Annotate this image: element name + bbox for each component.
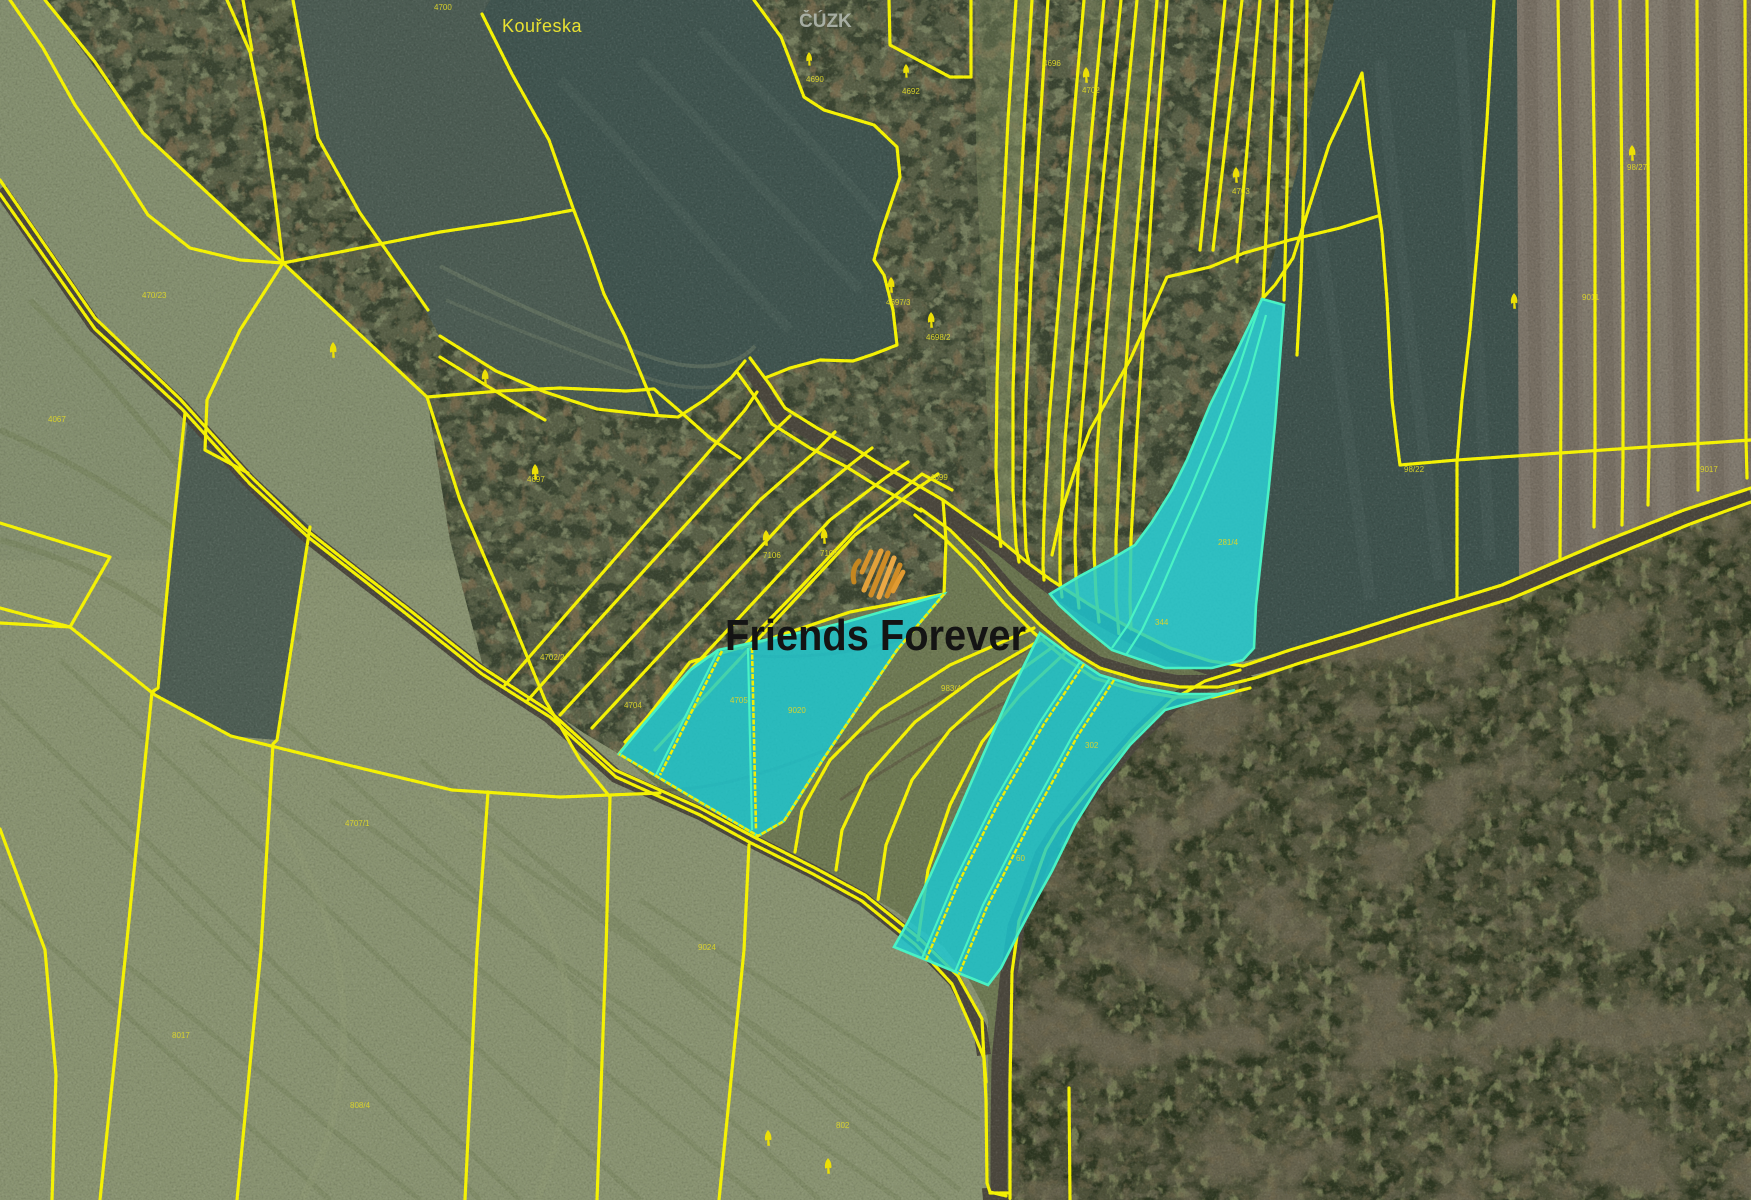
svg-text:302: 302 bbox=[1085, 741, 1099, 750]
svg-text:4707/1: 4707/1 bbox=[345, 819, 370, 828]
svg-text:98/22: 98/22 bbox=[1404, 465, 1425, 474]
svg-text:808/4: 808/4 bbox=[350, 1101, 371, 1110]
svg-text:4696: 4696 bbox=[1043, 59, 1061, 68]
svg-text:4702: 4702 bbox=[1082, 86, 1100, 95]
svg-text:ČÚZK: ČÚZK bbox=[799, 10, 852, 32]
svg-text:344: 344 bbox=[1155, 618, 1169, 627]
svg-text:4702/2: 4702/2 bbox=[540, 653, 565, 662]
svg-text:7106: 7106 bbox=[763, 551, 781, 560]
svg-text:4067: 4067 bbox=[48, 415, 66, 424]
svg-text:9011: 9011 bbox=[1582, 293, 1600, 302]
svg-text:8017: 8017 bbox=[172, 1031, 190, 1040]
svg-text:9020: 9020 bbox=[788, 706, 806, 715]
svg-text:4690: 4690 bbox=[806, 75, 824, 84]
svg-text:4704: 4704 bbox=[624, 701, 642, 710]
svg-text:Friends Forever: Friends Forever bbox=[725, 611, 1026, 660]
svg-text:4699: 4699 bbox=[930, 473, 948, 482]
svg-text:4697/3: 4697/3 bbox=[886, 298, 911, 307]
svg-text:4700: 4700 bbox=[434, 3, 452, 12]
svg-text:4705: 4705 bbox=[730, 696, 748, 705]
svg-text:470/23: 470/23 bbox=[142, 291, 167, 300]
svg-text:9017: 9017 bbox=[1700, 465, 1718, 474]
svg-text:9024: 9024 bbox=[698, 943, 716, 952]
svg-text:4698/2: 4698/2 bbox=[926, 333, 951, 342]
svg-text:802: 802 bbox=[836, 1121, 850, 1130]
svg-text:7105: 7105 bbox=[820, 549, 838, 558]
svg-text:281/4: 281/4 bbox=[1218, 538, 1239, 547]
svg-text:4692: 4692 bbox=[902, 87, 920, 96]
svg-text:4703: 4703 bbox=[1232, 187, 1250, 196]
svg-text:60: 60 bbox=[1016, 854, 1025, 863]
svg-text:Kouřeska: Kouřeska bbox=[502, 16, 583, 36]
svg-text:98/27: 98/27 bbox=[1627, 163, 1648, 172]
svg-text:983/4: 983/4 bbox=[941, 684, 962, 693]
